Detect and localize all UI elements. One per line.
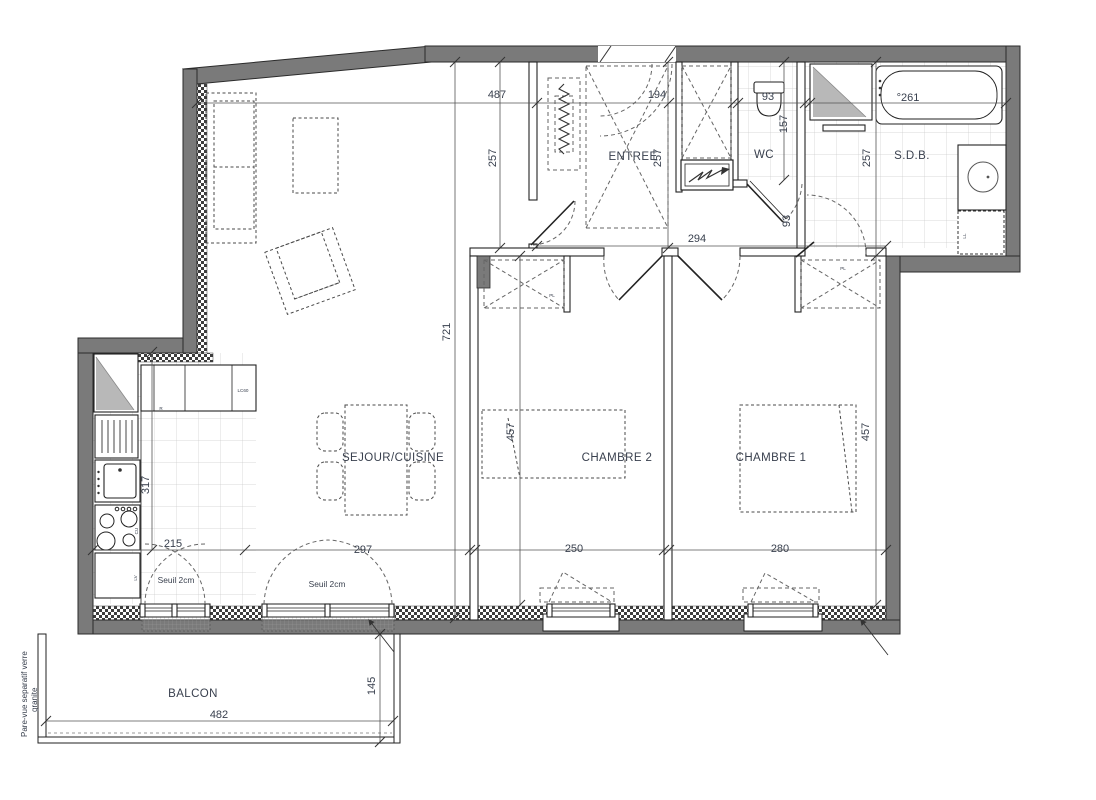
floorplan-page: ENTREE WC S.D.B. SEJOUR/CUISINE CHAMBRE … [0, 0, 1096, 800]
wall-right-chambre1 [886, 256, 900, 634]
label-ll: LL [962, 233, 967, 239]
wall-right-sdb [1006, 46, 1020, 272]
window-chambre2 [540, 572, 615, 617]
wall-sdb-bottom [886, 256, 1020, 272]
chambre2-door [604, 256, 662, 300]
window-chambre1 [743, 573, 819, 617]
wall-hallway-3 [740, 248, 805, 256]
radiator-inner [555, 96, 573, 152]
electrical-panel [681, 160, 733, 190]
dim-93-door: 93 [781, 215, 793, 227]
dim-297: 297 [354, 544, 372, 556]
floorplan-svg: ENTREE WC S.D.B. SEJOUR/CUISINE CHAMBRE … [0, 0, 1096, 800]
dim-487: 487 [488, 89, 506, 101]
bed-chambre2 [482, 410, 625, 478]
placard-chambre2 [477, 256, 564, 308]
coffee-table [293, 118, 338, 193]
note-parevue-1: Pare-vue separatif verre [20, 651, 29, 737]
dim-457-ch2: 457 [505, 423, 517, 441]
wall-placard1-side [795, 256, 801, 312]
chair [409, 413, 435, 451]
dim-482: 482 [210, 709, 228, 721]
dim-317: 317 [140, 476, 152, 494]
balcony-screen-wall [38, 634, 46, 743]
towel-rail [823, 125, 865, 131]
dim-457-ch1: 457 [860, 423, 872, 441]
radiator-coil [559, 84, 569, 154]
wall-left [78, 338, 93, 634]
dim-257-sejour: 257 [487, 149, 499, 167]
balcony [38, 634, 400, 743]
wall-sejour-chambre2 [470, 256, 478, 620]
chambre1-door [678, 256, 740, 300]
entree-equipment [548, 66, 733, 228]
washbasin [968, 162, 998, 192]
chair [317, 413, 343, 451]
dim-194: 194 [648, 89, 666, 101]
wc-door [747, 181, 802, 222]
dim-294: 294 [688, 233, 706, 245]
dim-257-entree: 257 [652, 149, 664, 167]
wall-top [425, 46, 1020, 62]
sejour-door [531, 201, 575, 245]
label-sejour: SEJOUR/CUISINE [342, 452, 444, 464]
label-pl1: PL [840, 266, 846, 271]
label-entree: ENTREE [608, 151, 657, 163]
wall-placard2-side [564, 256, 570, 312]
wall-chambre2-chambre1 [664, 256, 672, 620]
label-chambre2: CHAMBRE 2 [582, 452, 653, 464]
dim-250: 250 [565, 543, 583, 555]
bathtub [876, 66, 1002, 124]
washing-machine [958, 211, 1004, 254]
label-wc: WC [754, 149, 774, 161]
technical-column [682, 66, 731, 158]
label-lc60: LC60 [238, 388, 249, 393]
dim-257-sdb: 257 [861, 149, 873, 167]
note-seuil-kitchen: Seuil 2cm [158, 575, 195, 585]
note-parevue-2: granite [30, 687, 39, 712]
wall-entree-left [529, 62, 537, 200]
armchair [265, 228, 355, 315]
chair [317, 462, 343, 500]
note-seuil-sejour: Seuil 2cm [309, 579, 346, 589]
sink-faucet [118, 468, 122, 472]
label-sdb: S.D.B. [894, 150, 930, 162]
balcony-edge-bottom [38, 737, 400, 743]
dim-721: 721 [441, 323, 453, 341]
label-balcon: BALCON [168, 688, 218, 700]
wall-diagonal-topleft [183, 46, 431, 84]
wall-kitchen-top [78, 338, 197, 353]
dim-157: 157 [778, 115, 790, 133]
dim-261-bath: °261 [897, 92, 920, 104]
dim-280: 280 [771, 543, 789, 555]
label-pl2: PL [549, 293, 555, 298]
dim-215: 215 [164, 538, 182, 550]
sofa [206, 93, 256, 243]
wall-wc-sdb [797, 62, 805, 248]
label-cu: CU [134, 528, 139, 535]
balcony-edge-right [394, 634, 400, 743]
wall-livingroom-left [183, 69, 197, 353]
wall-hallway-1 [470, 248, 604, 256]
dim-93-wc: 93 [762, 91, 774, 103]
dim-145: 145 [366, 677, 378, 695]
label-chambre1: CHAMBRE 1 [736, 452, 807, 464]
tiled-floors [93, 62, 1006, 604]
chair [409, 462, 435, 500]
